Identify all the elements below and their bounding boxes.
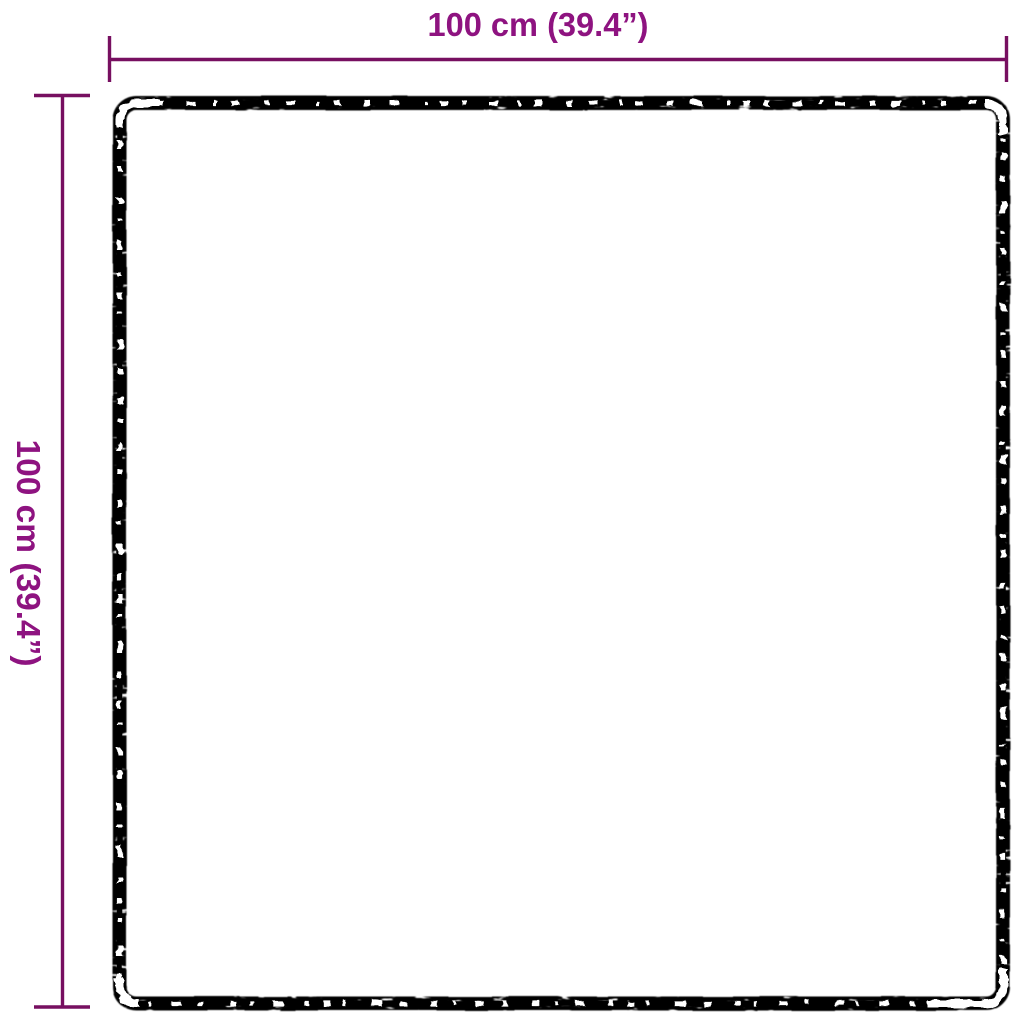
- svg-text:100 cm (39.4”): 100 cm (39.4”): [428, 7, 649, 44]
- svg-text:100 cm (39.4”): 100 cm (39.4”): [9, 440, 46, 667]
